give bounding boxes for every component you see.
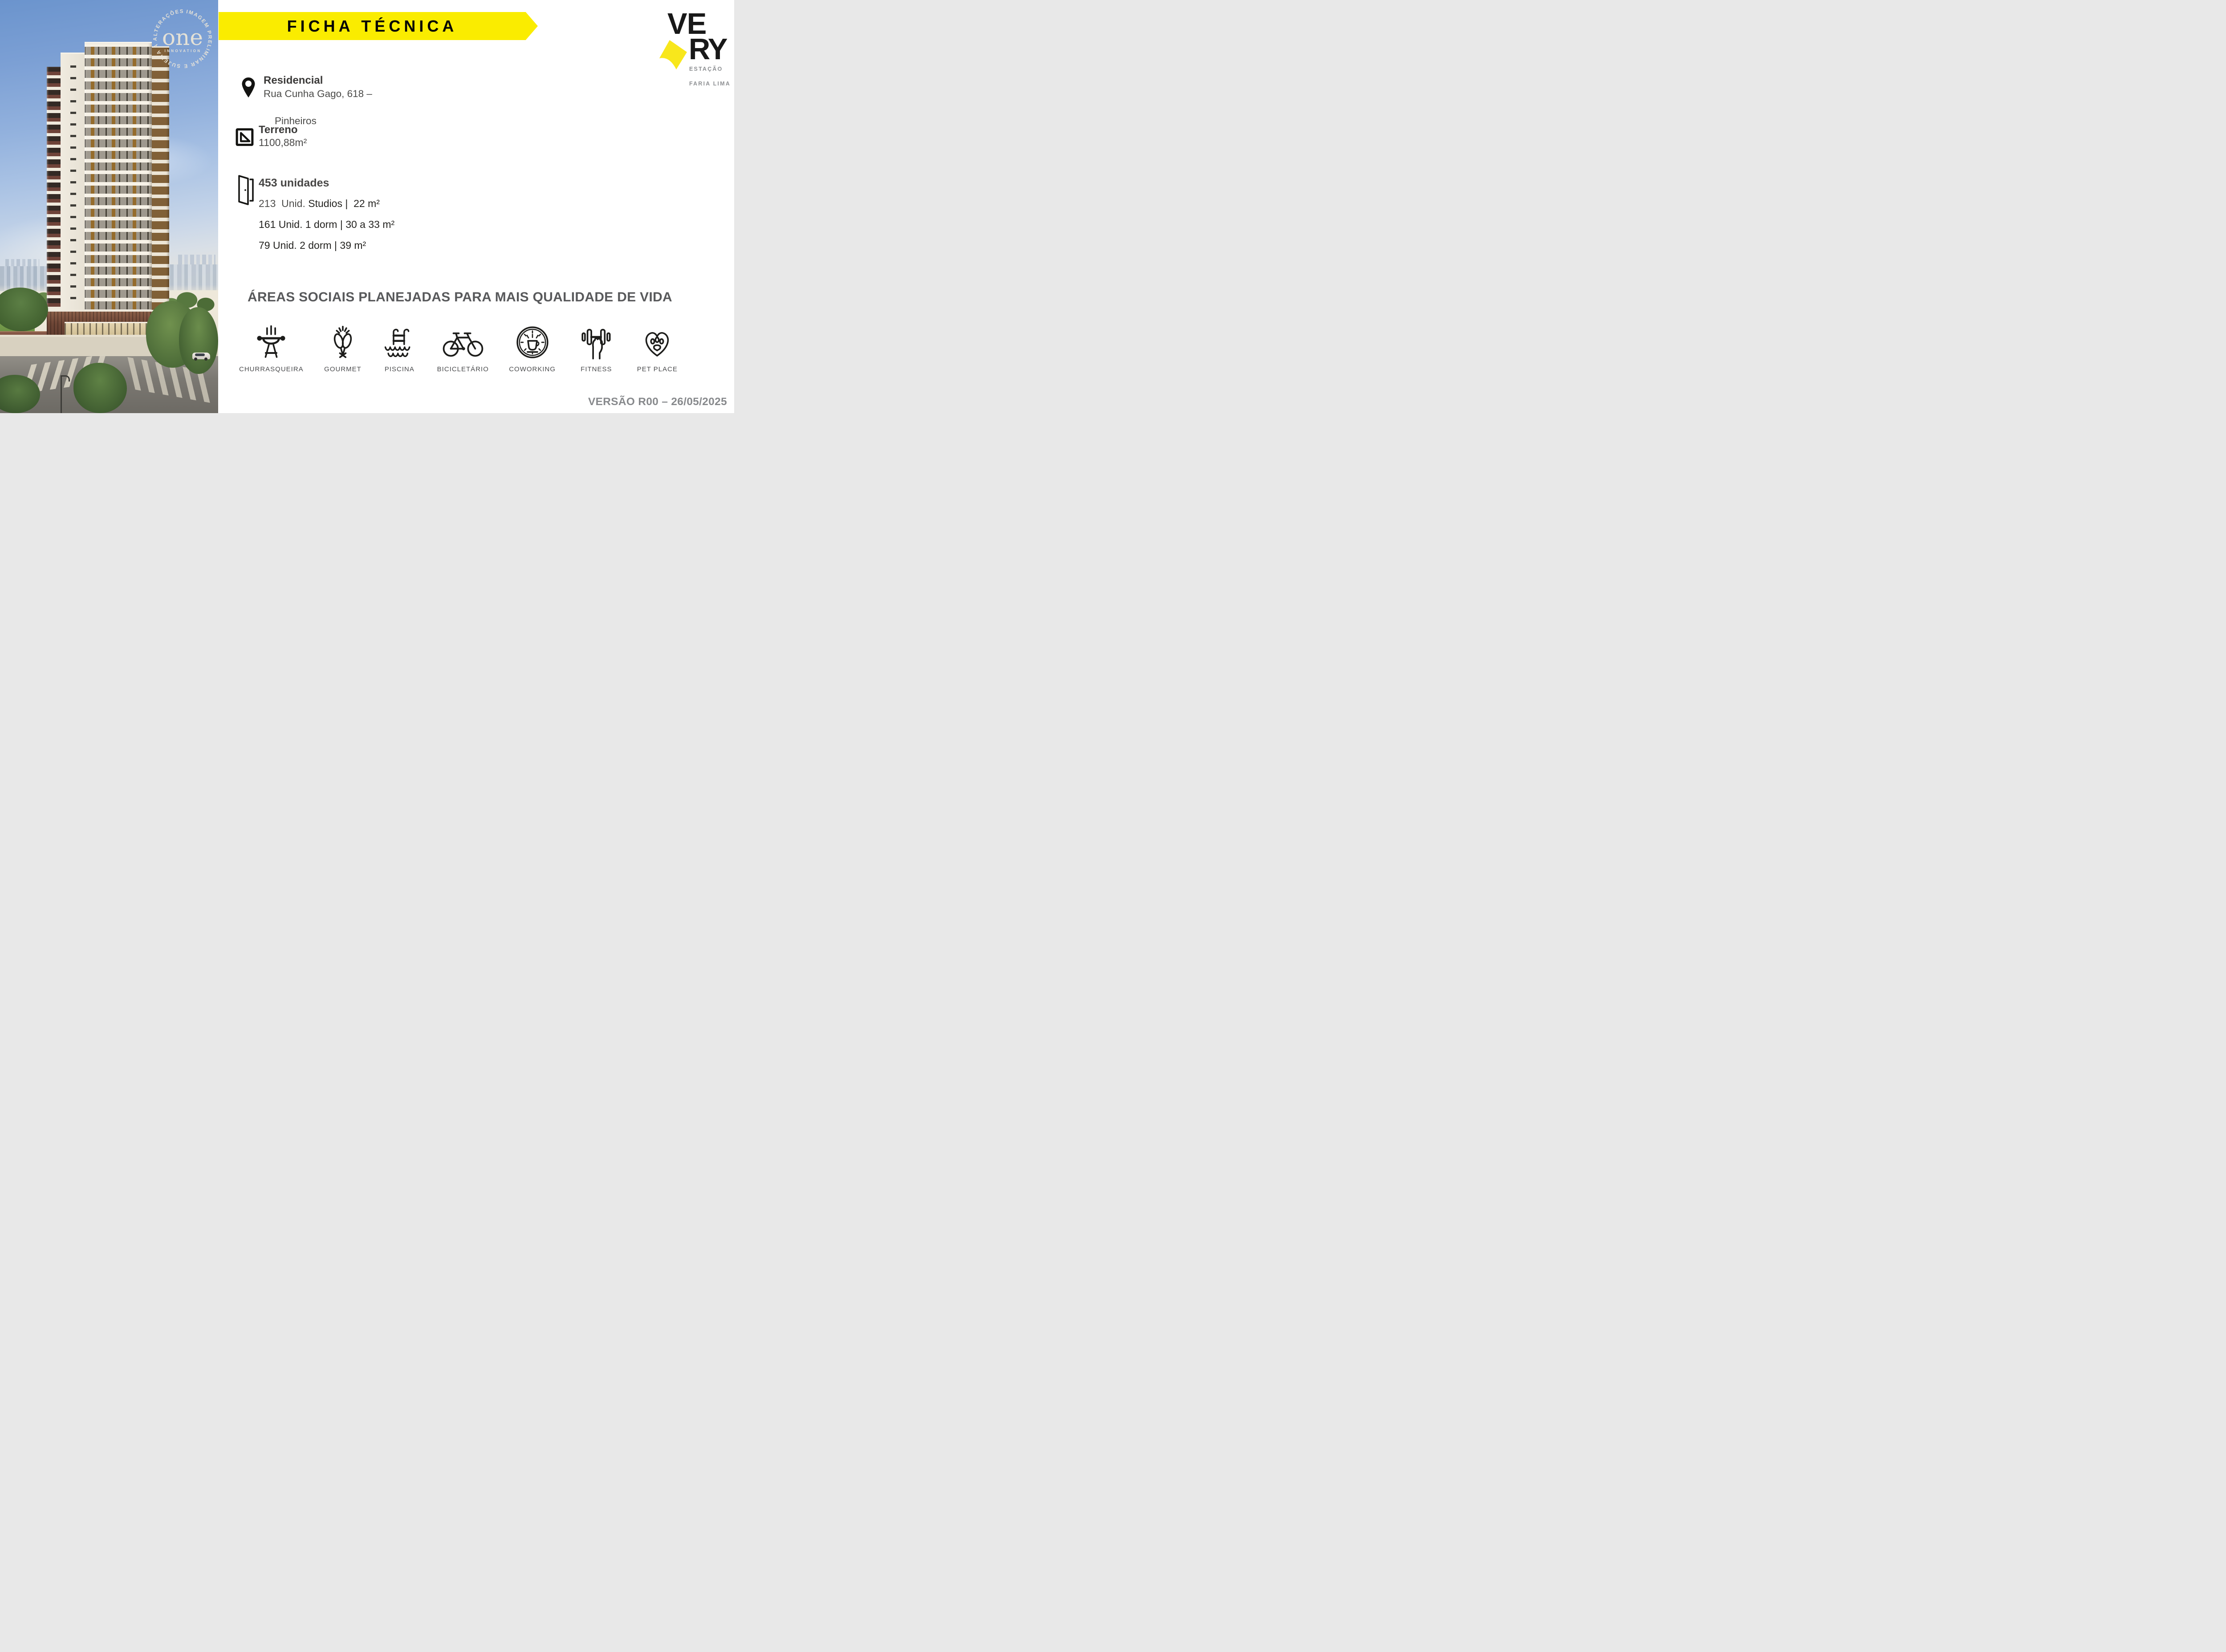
amenity-label: COWORKING <box>509 365 556 373</box>
amenity-label: CHURRASQUEIRA <box>239 365 304 373</box>
dumbbell-hand-icon <box>576 324 617 361</box>
amenity-bicicletario: BICICLETÁRIO <box>437 324 489 373</box>
unit-desc: 2 dorm | 39 m² <box>300 239 366 251</box>
address-line1: Rua Cunha Gago, 618 – <box>264 88 372 99</box>
amenity-label: GOURMET <box>324 365 362 373</box>
tower-window-column <box>70 61 76 308</box>
amenity-label: PET PLACE <box>637 365 678 373</box>
clock-coffee-icon <box>515 324 550 361</box>
amenity-coworking: COWORKING <box>509 324 556 373</box>
title-banner: FICHA TÉCNICA <box>219 12 538 40</box>
preliminary-image-watermark: IMAGEM PRELIMINAR E SUJEITA A ALTERAÇÕES… <box>146 2 218 75</box>
one-logo-subtitle: INNOVATION <box>164 49 201 53</box>
amenity-churrasqueira: CHURRASQUEIRA <box>239 324 304 373</box>
door-units-icon <box>238 174 254 207</box>
very-logo-subtitle: ESTAÇÃO FARIA LIMA <box>689 65 731 88</box>
street-lamp <box>61 375 69 413</box>
page-title: FICHA TÉCNICA <box>219 12 526 40</box>
version-stamp: VERSÃO R00 – 26/05/2025 <box>588 396 727 408</box>
location-pin-icon <box>241 77 256 98</box>
tower-right-facade <box>152 46 169 310</box>
subtitle-line1: ESTAÇÃO <box>689 66 723 72</box>
amenities-row: CHURRASQUEIRA GOURMET <box>239 321 678 373</box>
ficha-tecnica-sheet: IMAGEM PRELIMINAR E SUJEITA A ALTERAÇÕES… <box>0 0 734 413</box>
unit-desc: 1 dorm | 30 a 33 m² <box>305 219 394 230</box>
very-logo-ry: RY <box>689 34 727 64</box>
amenity-label: PISCINA <box>385 365 414 373</box>
amenity-label: BICICLETÁRIO <box>437 365 489 373</box>
bicycle-icon <box>441 324 485 361</box>
residential-title: Residencial <box>264 74 323 87</box>
terrain-title: Terreno <box>259 123 298 136</box>
amenity-label: FITNESS <box>581 365 612 373</box>
tower-left-balconies <box>47 67 61 310</box>
residential-address: Rua Cunha Gago, 618 – Pinheiros <box>264 87 372 128</box>
grill-icon <box>252 324 290 361</box>
tree <box>73 363 127 413</box>
terrain-area-icon <box>236 128 254 146</box>
toast-glasses-icon <box>324 324 362 361</box>
unit-qty: 79 Unid. <box>259 239 297 251</box>
car <box>192 353 210 359</box>
unit-line-1dorm: 161 Unid. 1 dorm | 30 a 33 m² <box>259 217 394 231</box>
amenities-heading: ÁREAS SOCIAIS PLANEJADAS PARA MAIS QUALI… <box>248 289 666 305</box>
unit-line-2dorm: 79 Unid. 2 dorm | 39 m² <box>259 238 366 252</box>
one-logo: one <box>162 24 203 50</box>
amenity-piscina: PISCINA <box>382 324 417 373</box>
building-photo: IMAGEM PRELIMINAR E SUJEITA A ALTERAÇÕES… <box>0 0 218 413</box>
tower-center-facade <box>85 42 152 310</box>
amenity-fitness: FITNESS <box>576 324 617 373</box>
terrain-area-value: 1100,88m² <box>259 136 307 149</box>
subtitle-line2: FARIA LIMA <box>689 81 731 87</box>
amenity-pet-place: PET PLACE <box>637 324 678 373</box>
unit-desc: Studios | 22 m² <box>308 198 380 209</box>
unit-qty: 161 Unid. <box>259 219 302 230</box>
unit-qty: 213 Unid. <box>259 198 305 209</box>
unit-line-studios: 213 Unid. Studios | 22 m² <box>259 196 380 211</box>
pool-ladder-icon <box>382 324 417 361</box>
units-total: 453 unidades <box>259 176 329 190</box>
very-logo: VE RY ESTAÇÃO FARIA LIMA <box>659 13 734 81</box>
amenity-gourmet: GOURMET <box>324 324 362 373</box>
heart-paw-icon <box>639 324 675 361</box>
tree <box>179 307 218 374</box>
very-arrow-icon <box>659 40 687 69</box>
